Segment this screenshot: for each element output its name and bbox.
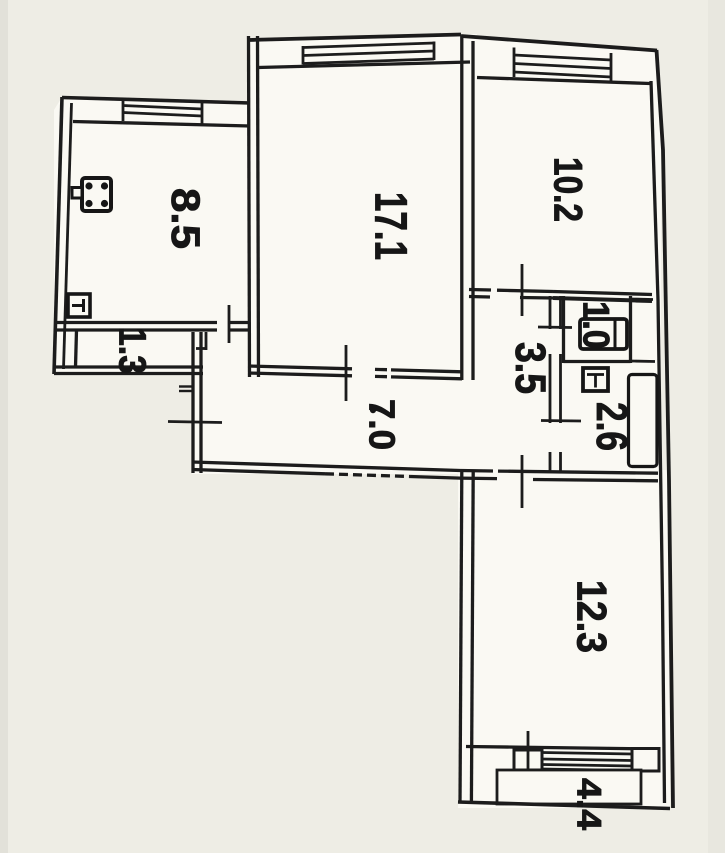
svg-text:17.1: 17.1: [366, 192, 417, 260]
svg-text:1.3: 1.3: [111, 327, 153, 374]
svg-text:1.0: 1.0: [576, 301, 617, 349]
svg-text:2.6: 2.6: [587, 402, 636, 451]
svg-text:10.2: 10.2: [546, 157, 590, 222]
svg-text:12.3: 12.3: [569, 580, 616, 653]
svg-text:8.5: 8.5: [163, 188, 207, 249]
svg-text:7.0: 7.0: [362, 399, 403, 450]
svg-text:3.5: 3.5: [506, 342, 554, 394]
svg-text:4.4: 4.4: [570, 778, 608, 830]
